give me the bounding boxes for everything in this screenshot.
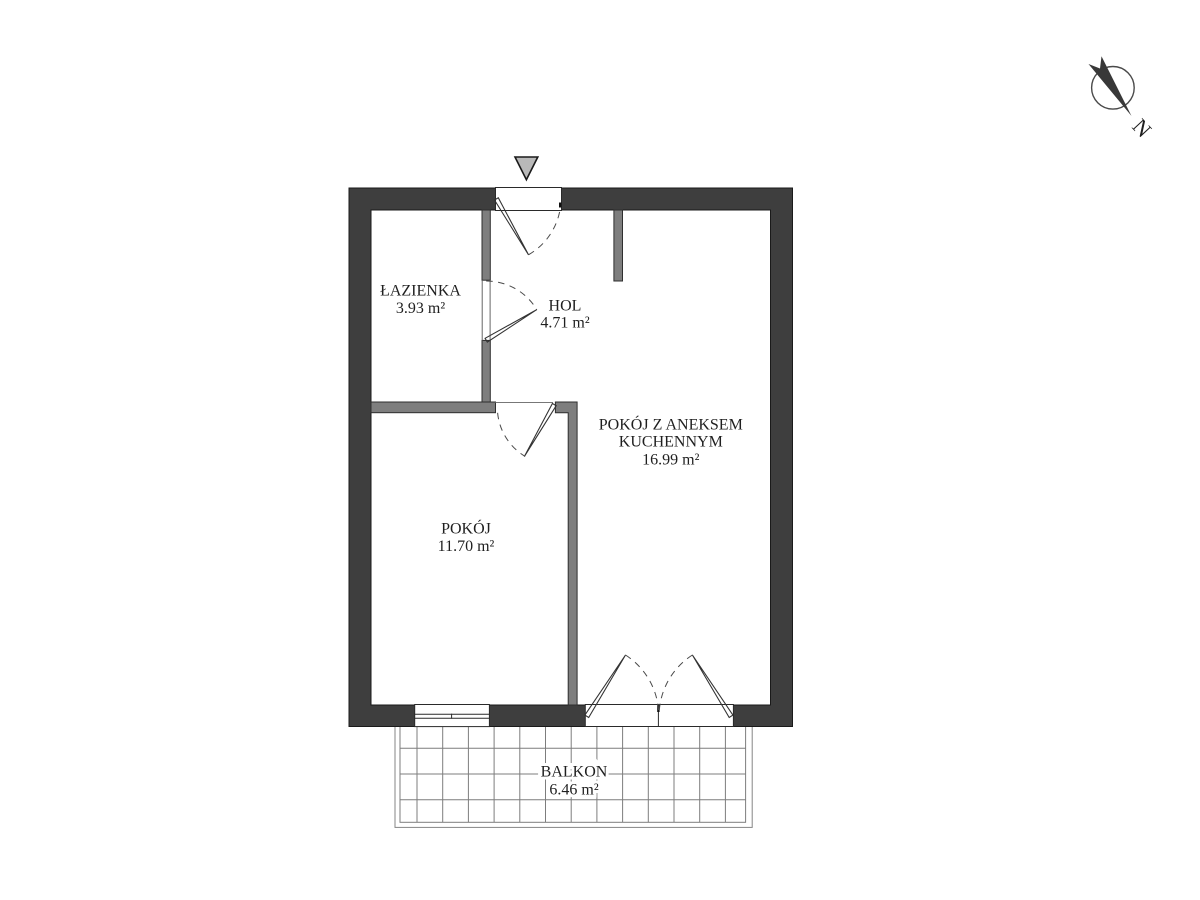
svg-text:4.71 m²: 4.71 m² — [540, 315, 589, 332]
svg-text:KUCHENNYM: KUCHENNYM — [619, 433, 723, 450]
svg-text:16.99 m²: 16.99 m² — [642, 452, 699, 469]
svg-text:BALKON: BALKON — [541, 763, 608, 780]
svg-text:ŁAZIENKA: ŁAZIENKA — [380, 283, 461, 300]
svg-text:6.46 m²: 6.46 m² — [549, 781, 598, 798]
svg-text:POKÓJ: POKÓJ — [441, 518, 491, 537]
svg-text:POKÓJ Z ANEKSEM: POKÓJ Z ANEKSEM — [599, 414, 743, 433]
svg-text:3.93 m²: 3.93 m² — [396, 300, 445, 317]
svg-text:11.70 m²: 11.70 m² — [438, 538, 495, 555]
svg-text:HOL: HOL — [549, 298, 582, 315]
